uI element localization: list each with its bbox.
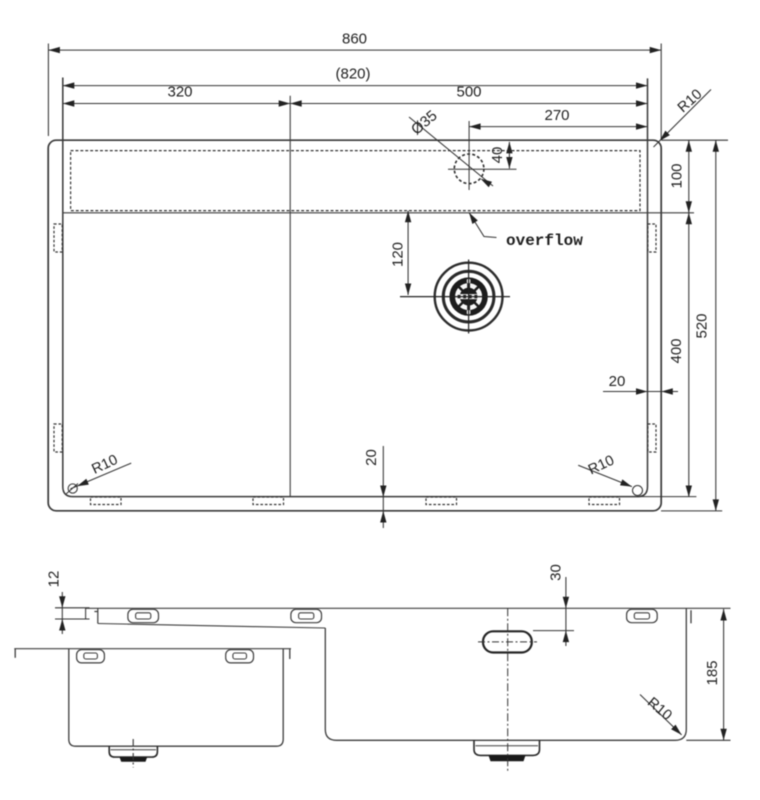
svg-text:40: 40 xyxy=(489,147,506,164)
svg-text:500: 500 xyxy=(456,84,481,101)
svg-text:270: 270 xyxy=(544,107,569,124)
svg-text:520: 520 xyxy=(694,313,711,338)
svg-text:overflow: overflow xyxy=(506,232,583,250)
svg-text:100: 100 xyxy=(669,163,686,188)
svg-text:12: 12 xyxy=(46,571,63,588)
svg-text:120: 120 xyxy=(390,242,407,267)
svg-text:320: 320 xyxy=(167,84,192,101)
svg-text:Ø35: Ø35 xyxy=(408,107,441,138)
svg-text:30: 30 xyxy=(548,564,565,581)
svg-text:20: 20 xyxy=(609,373,626,390)
svg-text:20: 20 xyxy=(363,449,380,466)
svg-text:R10: R10 xyxy=(644,695,675,724)
svg-text:400: 400 xyxy=(668,338,685,363)
svg-text:(820): (820) xyxy=(335,66,370,83)
svg-text:R10: R10 xyxy=(675,86,705,116)
svg-text:185: 185 xyxy=(704,660,721,685)
svg-text:860: 860 xyxy=(342,31,367,48)
